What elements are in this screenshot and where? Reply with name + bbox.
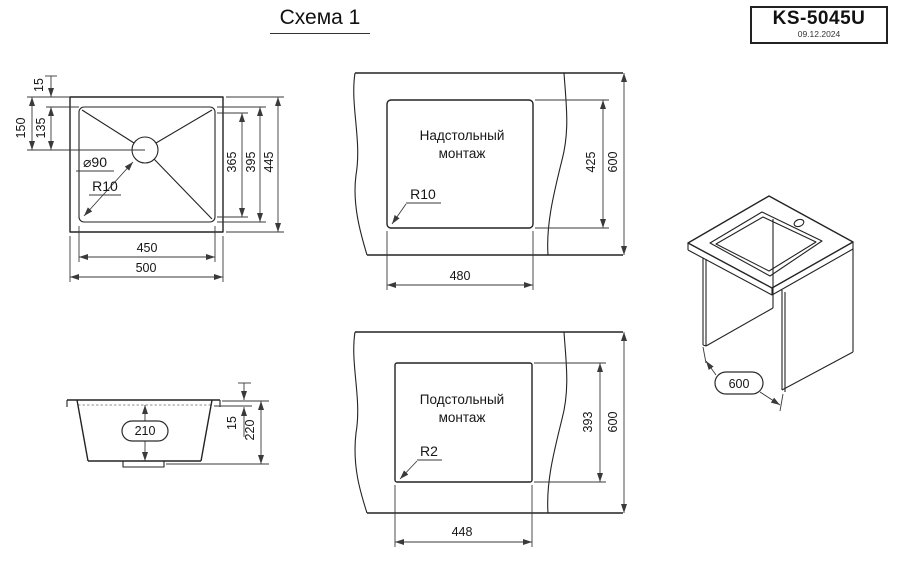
- plan-diagonal-br: [154, 159, 212, 219]
- plan-view: 15 150 135 365 395 445 450 500: [14, 76, 284, 282]
- right-panel-bottom-edge: [782, 352, 853, 390]
- bowl-wall-right: [201, 400, 212, 461]
- dim-label-220: 220: [243, 420, 257, 441]
- dim-label-135: 135: [34, 118, 48, 139]
- dim-label-iso-600: 600: [729, 377, 750, 391]
- iso-view: 600: [688, 196, 853, 411]
- dim-label-15: 15: [225, 416, 239, 430]
- cabinet-interior-bottom-edge: [706, 308, 773, 346]
- radius-leader: [400, 461, 417, 479]
- dim-label-600: 600: [606, 412, 620, 433]
- mount-label-line1: Надстольный: [420, 128, 505, 143]
- cutout-radius-label: R2: [420, 443, 438, 459]
- dim-label-500: 500: [136, 261, 157, 275]
- drain-stub: [123, 461, 164, 467]
- dim-label-210: 210: [135, 424, 156, 438]
- depth-arrow-right: [760, 392, 780, 405]
- dim-label-445: 445: [262, 152, 276, 173]
- side-view: 210 15 220: [67, 383, 269, 467]
- bowl-wall-left: [77, 400, 88, 461]
- dim-label-395: 395: [244, 152, 258, 173]
- plan-diagonal-tl: [82, 110, 134, 143]
- ext-line: [703, 347, 706, 363]
- drain-diameter-label: ⌀90: [83, 154, 107, 170]
- mount-label-line2: монтаж: [439, 146, 486, 161]
- radius-leader: [392, 204, 406, 224]
- plan-diagonal-tr: [156, 110, 212, 143]
- break-line-right: [548, 332, 567, 513]
- drawing-sheet: Схема 1 KS-5045U 09.12.2024: [0, 0, 898, 563]
- cutout-rect: [387, 100, 533, 228]
- plan-radius-label: R10: [92, 178, 118, 194]
- break-line-left: [354, 332, 367, 513]
- surface-mount-view: Надстольный монтаж R10 425 600 480: [354, 73, 624, 290]
- break-line-left: [354, 73, 367, 255]
- dim-label-448: 448: [452, 525, 473, 539]
- dim-label-rim-offset: 15: [32, 78, 46, 92]
- dim-label-425: 425: [584, 152, 598, 173]
- mount-label-line1: Подстольный: [420, 392, 504, 407]
- dim-label-600: 600: [606, 152, 620, 173]
- dim-label-450: 450: [137, 241, 158, 255]
- under-mount-view: Подстольный монтаж R2 393 600 448: [354, 332, 624, 547]
- dim-label-480: 480: [450, 269, 471, 283]
- dim-label-150: 150: [14, 118, 28, 139]
- mount-label-line2: монтаж: [439, 410, 486, 425]
- dim-label-365: 365: [225, 152, 239, 173]
- ext-line: [780, 394, 783, 411]
- dim-label-393: 393: [581, 412, 595, 433]
- cutout-radius-label: R10: [410, 186, 436, 202]
- drawing-canvas: 15 150 135 365 395 445 450 500: [0, 0, 898, 563]
- depth-arrow-left: [706, 361, 716, 375]
